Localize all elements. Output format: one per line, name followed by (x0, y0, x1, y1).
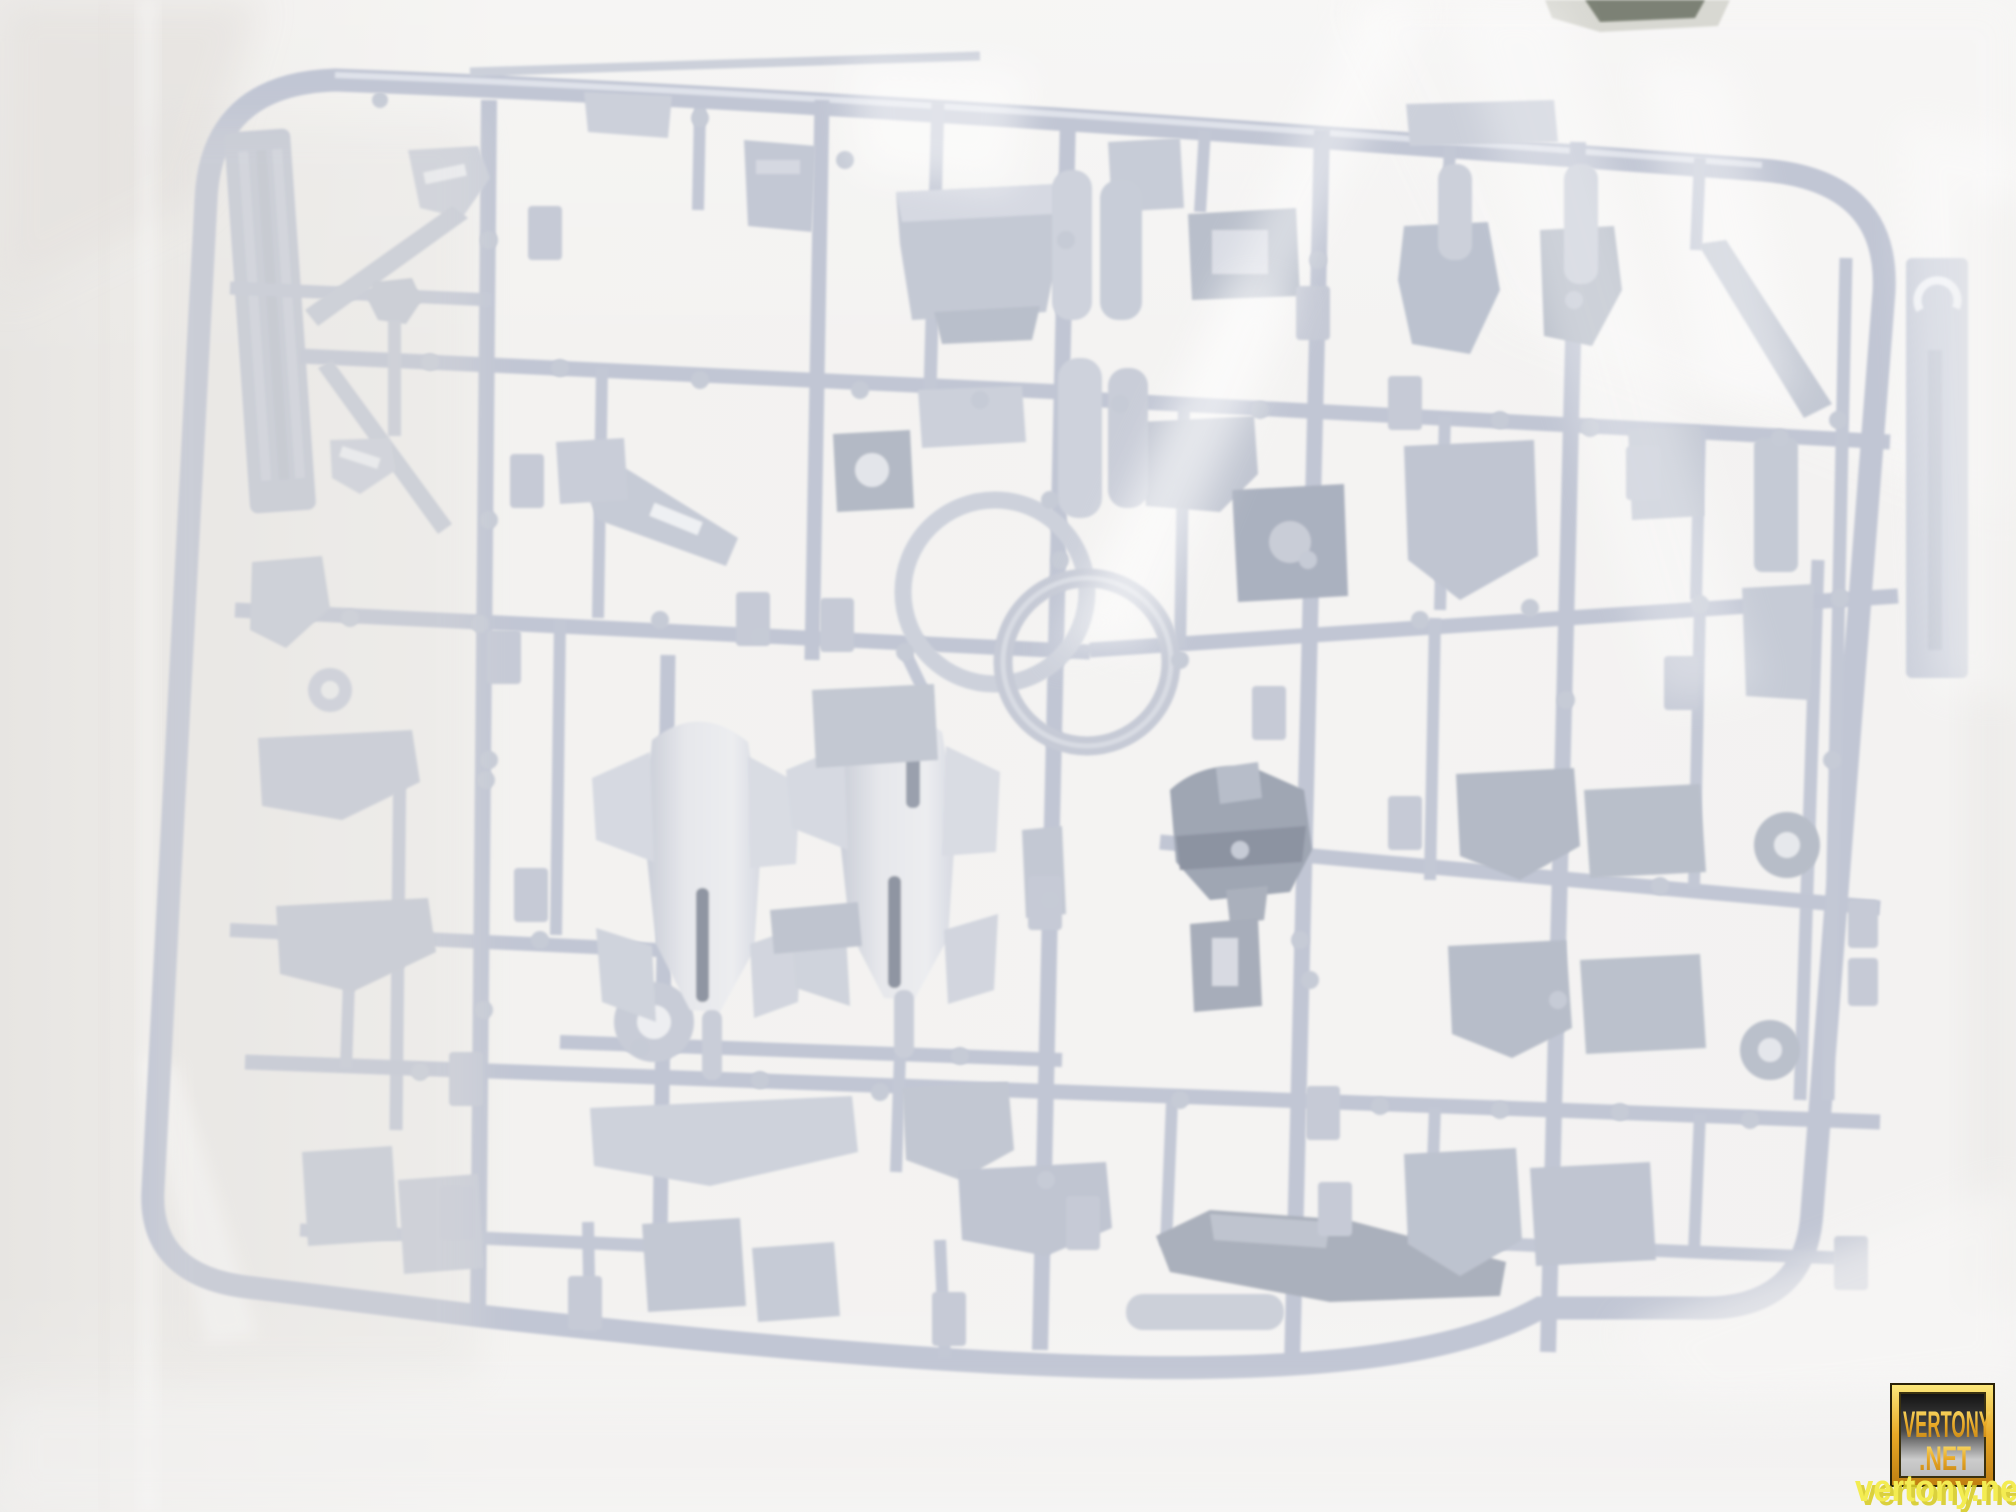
svg-text:VERTONY: VERTONY (1903, 1404, 1991, 1445)
svg-text:vertony.net: vertony.net (1855, 1468, 2016, 1510)
